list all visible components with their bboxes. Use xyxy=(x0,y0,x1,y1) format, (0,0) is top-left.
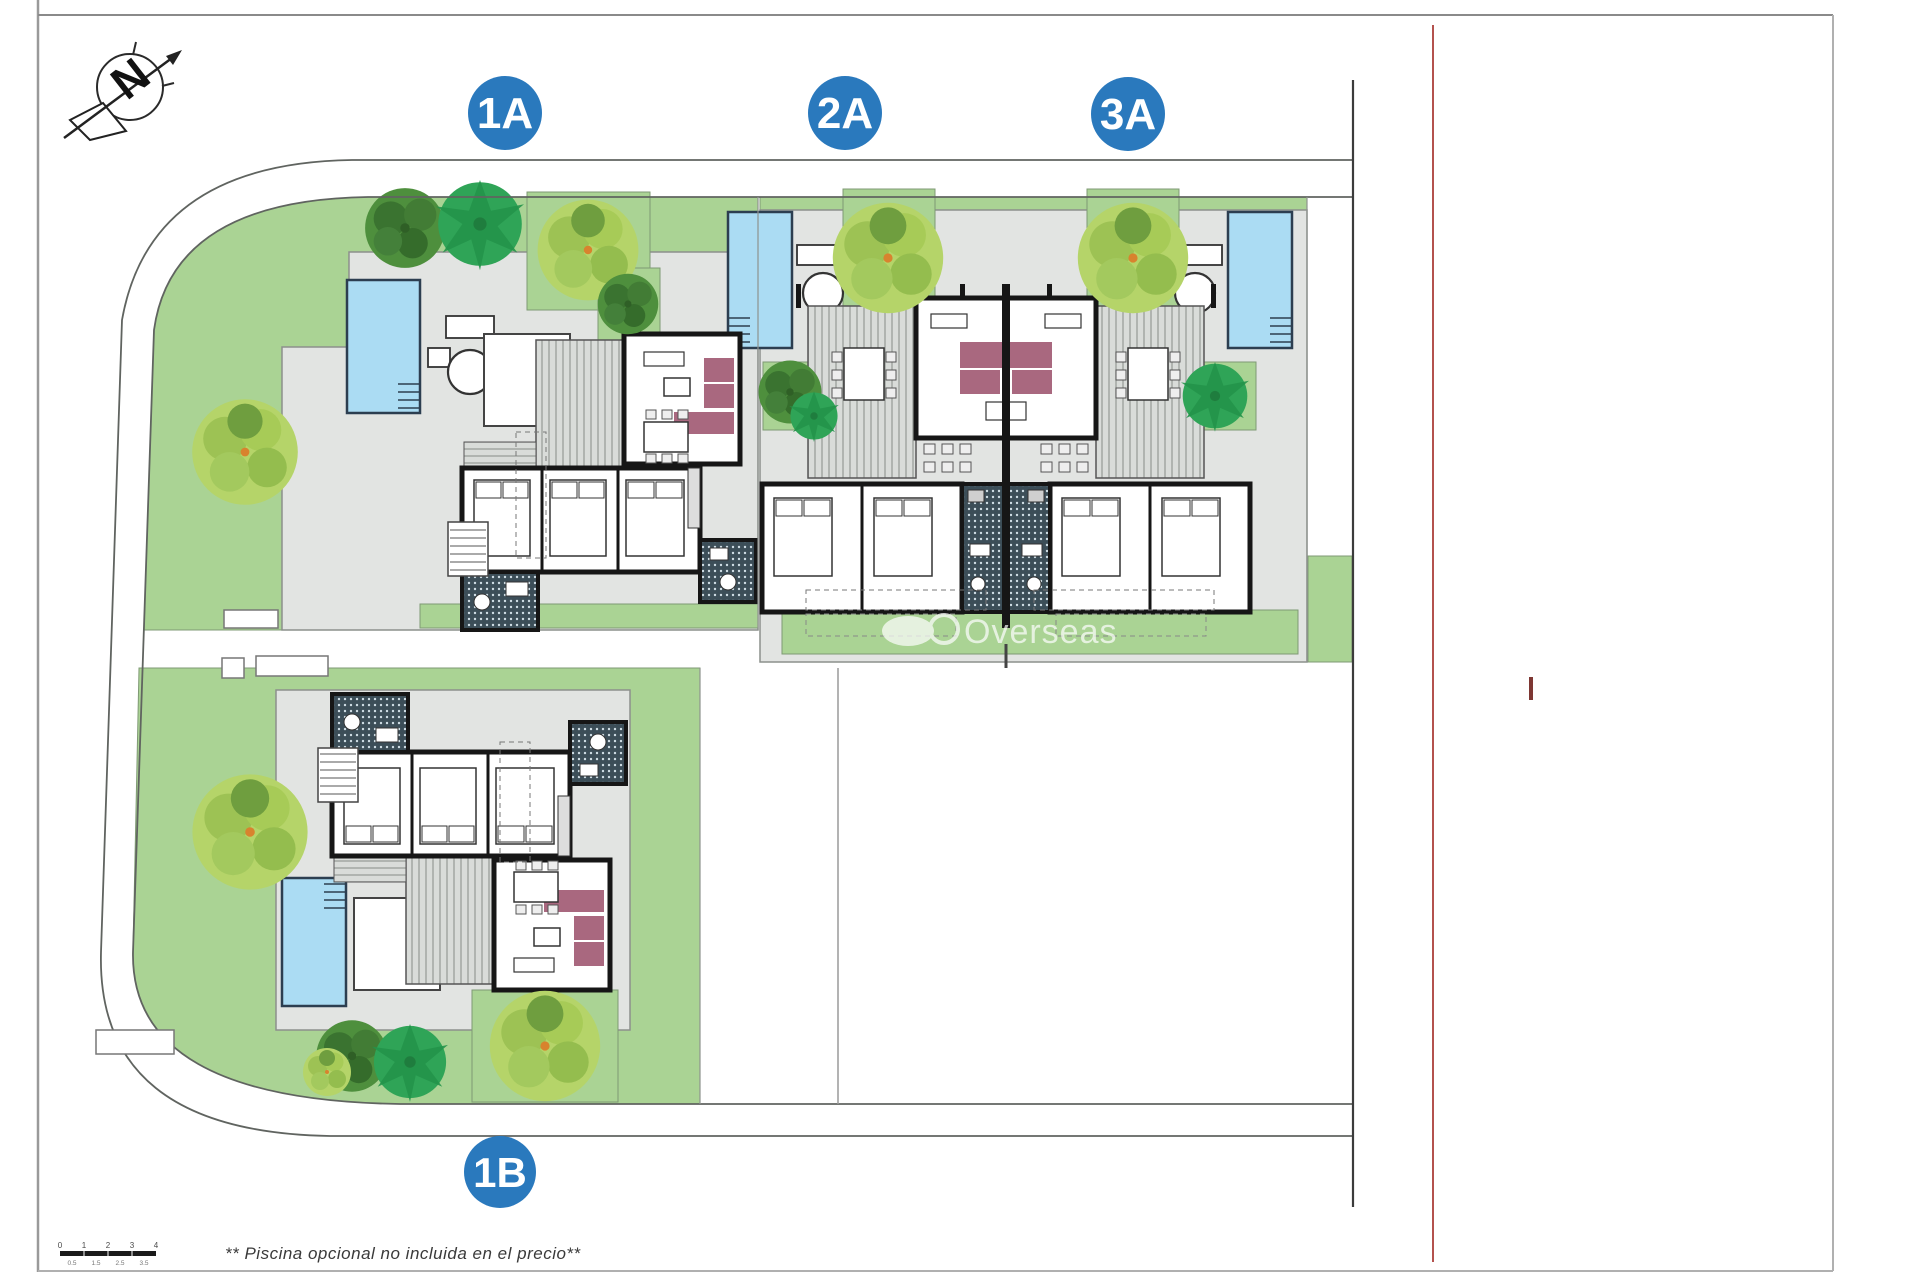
pool-1b xyxy=(282,878,346,1006)
unit-badge-3a-label: 3A xyxy=(1100,90,1156,139)
scale-major-2: 2 xyxy=(106,1241,111,1250)
unit-badge-3a: 3A xyxy=(1091,77,1165,151)
scale-major-1: 1 xyxy=(82,1241,87,1250)
site-plan-page: 1A 2A 3A 1B N Overseas 0 1 2 3 4 xyxy=(0,0,1920,1280)
unit-badge-1a: 1A xyxy=(468,76,542,150)
pool-1a xyxy=(347,280,420,413)
red-tick-mark xyxy=(1529,677,1533,700)
scale-major-0: 0 xyxy=(58,1241,63,1250)
unit-badge-1a-label: 1A xyxy=(477,89,533,138)
scale-major-4: 4 xyxy=(154,1241,159,1250)
scale-minor-2: 2.5 xyxy=(115,1260,124,1267)
watermark-text: Overseas xyxy=(964,613,1118,651)
unit-badge-1b-label: 1B xyxy=(473,1149,527,1196)
compass-north-letter: N xyxy=(101,48,159,109)
villa-2a-3a-house xyxy=(762,284,1250,636)
scale-minor-3: 3.5 xyxy=(139,1260,148,1267)
east-green-strip xyxy=(1308,556,1352,662)
scale-major-3: 3 xyxy=(130,1241,135,1250)
unit-badge-1b: 1B xyxy=(464,1136,536,1208)
north-compass-icon: N xyxy=(64,42,182,140)
unit-badge-2a: 2A xyxy=(808,76,882,150)
footnote-text: ** Piscina opcional no incluida en el pr… xyxy=(225,1244,582,1263)
scale-minor-1: 1.5 xyxy=(91,1260,100,1267)
scale-bar: 0 1 2 3 4 0.5 1.5 2.5 3.5 xyxy=(58,1241,159,1267)
pool-3a xyxy=(1228,212,1292,348)
scale-minor-0: 0.5 xyxy=(67,1260,76,1267)
pool-2a xyxy=(728,212,792,348)
unit-badge-2a-label: 2A xyxy=(817,89,873,138)
site-plan-svg: 1A 2A 3A 1B N Overseas 0 1 2 3 4 xyxy=(0,0,1920,1280)
